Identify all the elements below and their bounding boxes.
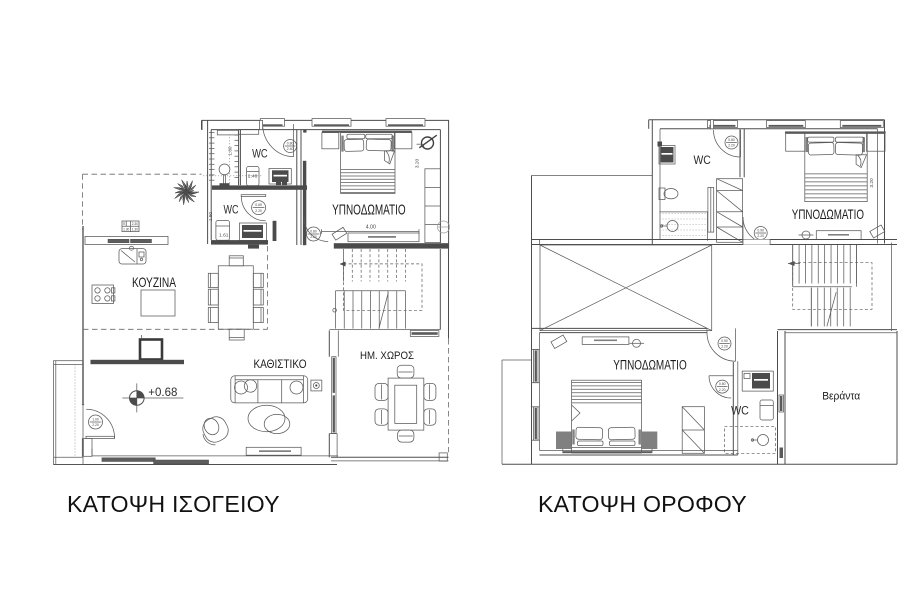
svg-text:0.69: 0.69 [255,203,262,207]
svg-text:2.20: 2.20 [255,209,262,213]
svg-text:2.20: 2.20 [719,388,726,392]
svg-text:ΥΠΝΟΔΩΜΑΤΙΟ: ΥΠΝΟΔΩΜΑΤΙΟ [792,206,864,222]
svg-text:ΥΠΝΟΔΩΜΑΤΙΟ: ΥΠΝΟΔΩΜΑΤΙΟ [613,358,686,373]
svg-text:2.40: 2.40 [287,147,294,151]
svg-text:0.80: 0.80 [310,230,317,234]
svg-text:WC: WC [224,202,239,216]
svg-text:2.48: 2.48 [248,173,258,179]
svg-text:3.20: 3.20 [414,159,420,169]
svg-text:ΚΑΤΟΨΗ ΙΣΟΓΕΙΟΥ: ΚΑΤΟΨΗ ΙΣΟΓΕΙΟΥ [67,491,280,517]
svg-text:ΚΑΤΟΨΗ ΟΡΟΦΟΥ: ΚΑΤΟΨΗ ΟΡΟΦΟΥ [538,491,747,517]
svg-text:1.30: 1.30 [123,227,129,231]
svg-text:3.20: 3.20 [869,178,875,188]
svg-text:1.61: 1.61 [219,233,229,239]
svg-text:0.80: 0.80 [728,138,735,142]
svg-text:2.20: 2.20 [728,144,735,148]
svg-text:4.00: 4.00 [366,225,376,231]
svg-text:WC: WC [731,404,749,418]
svg-text:+0.68: +0.68 [148,387,177,399]
svg-text:1.30: 1.30 [132,227,138,231]
svg-text:0.90: 0.90 [721,339,728,343]
svg-text:ΚΑΘΙΣΤΙΚΟ: ΚΑΘΙΣΤΙΚΟ [254,357,307,371]
svg-text:WC: WC [252,146,268,160]
svg-text:ΥΠΝΟΔΩΜΑΤΙΟ: ΥΠΝΟΔΩΜΑΤΙΟ [332,202,406,218]
svg-text:1.00: 1.00 [92,418,99,422]
svg-text:2.20: 2.20 [310,235,317,239]
svg-text:1.50: 1.50 [208,212,213,221]
svg-text:0.90: 0.90 [757,229,764,233]
svg-text:ΚΟΥΖΙΝΑ: ΚΟΥΖΙΝΑ [132,275,177,290]
svg-text:2.20: 2.20 [721,345,728,349]
svg-text:WC: WC [694,153,712,167]
svg-text:ΗΜ. ΧΩΡΟΣ: ΗΜ. ΧΩΡΟΣ [360,350,414,362]
svg-text:0.80: 0.80 [719,382,726,386]
svg-text:1.60: 1.60 [228,146,233,155]
svg-text:2.20: 2.20 [757,234,764,238]
svg-text:0.80: 0.80 [287,142,294,146]
svg-text:2.20: 2.20 [92,423,99,427]
svg-text:Βεράντα: Βεράντα [822,391,861,403]
svg-text:2.30: 2.30 [132,222,138,226]
